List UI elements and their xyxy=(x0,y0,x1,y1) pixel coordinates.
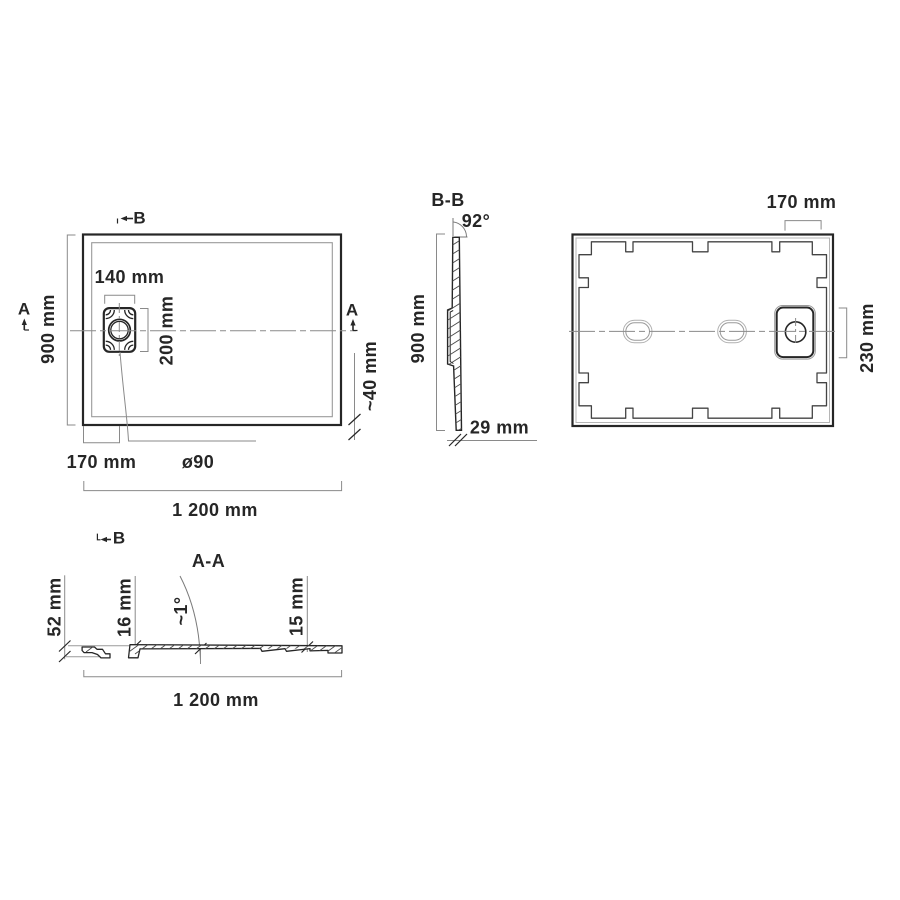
svg-text:~40 mm: ~40 mm xyxy=(360,341,380,411)
svg-text:B-B: B-B xyxy=(431,190,464,210)
svg-text:29 mm: 29 mm xyxy=(470,418,529,438)
svg-text:170 mm: 170 mm xyxy=(767,192,837,212)
svg-text:ø90: ø90 xyxy=(182,452,214,472)
svg-text:B: B xyxy=(133,209,145,228)
svg-text:900 mm: 900 mm xyxy=(408,294,428,364)
svg-text:52 mm: 52 mm xyxy=(45,577,65,636)
svg-text:A-A: A-A xyxy=(192,551,225,571)
svg-text:B: B xyxy=(113,529,125,548)
svg-text:A: A xyxy=(18,299,30,318)
svg-text:200 mm: 200 mm xyxy=(157,296,177,366)
svg-text:15 mm: 15 mm xyxy=(287,577,307,636)
svg-text:900 mm: 900 mm xyxy=(38,294,58,364)
svg-text:140 mm: 140 mm xyxy=(95,267,165,287)
svg-text:~1°: ~1° xyxy=(171,596,191,625)
svg-text:16 mm: 16 mm xyxy=(115,578,135,637)
svg-text:230 mm: 230 mm xyxy=(857,303,877,373)
svg-text:170 mm: 170 mm xyxy=(67,452,137,472)
svg-text:A: A xyxy=(346,300,358,319)
svg-text:1 200 mm: 1 200 mm xyxy=(172,500,258,520)
svg-text:1 200 mm: 1 200 mm xyxy=(173,690,259,710)
svg-text:92°: 92° xyxy=(462,211,491,231)
